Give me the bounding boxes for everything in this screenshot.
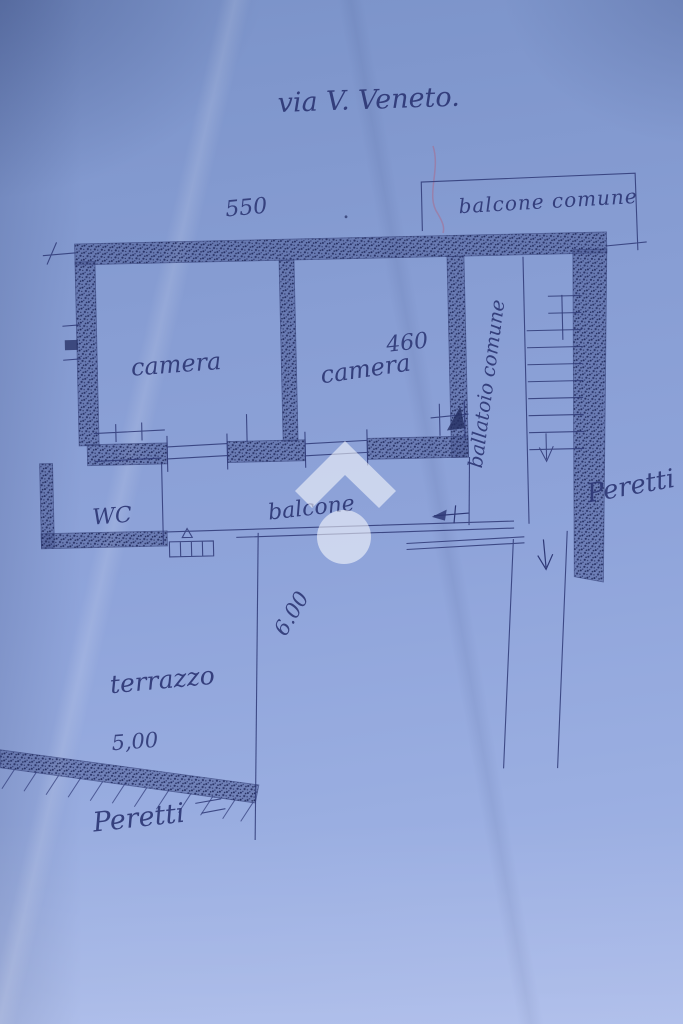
balcone-comune-label: balcone comune: [458, 184, 638, 218]
stair-down-arrow: [539, 433, 554, 461]
down-arrow: [537, 539, 553, 569]
ballatoio-comune-label: ballatoio comune: [464, 298, 510, 469]
wall-bottom-seg1: [87, 443, 167, 466]
wall-top: [75, 232, 607, 265]
wall-partition: [279, 260, 298, 441]
left-arrow-head: [432, 510, 447, 521]
plan-geometry: 550 balcone comune camera camera 460 bal…: [0, 172, 683, 845]
house-circle-shape: [317, 510, 371, 564]
floor-plan-drawing: via V. Veneto.: [0, 0, 683, 1024]
wall-stairwell-right: [567, 249, 615, 583]
wall-bottom-seg3: [367, 436, 468, 459]
annotation-arrows: [432, 503, 553, 572]
red-crease-mark: [433, 146, 444, 233]
street-label: via V. Veneto.: [277, 82, 460, 119]
dim-facade-width: 550: [224, 194, 268, 223]
wall-bottom-seg2: [227, 440, 305, 463]
signature-bottom: Peretti: [90, 798, 186, 839]
dim-terrazzo-depth: 6.00: [269, 587, 314, 639]
dim-terrazzo-width: 5,00: [111, 728, 159, 755]
camera-left-label: camera: [130, 347, 222, 382]
terrazzo-label: terrazzo: [109, 661, 216, 700]
wc-label: WC: [92, 503, 133, 531]
ink-dot: [345, 215, 348, 218]
dim-camera-right-width: 460: [384, 328, 429, 358]
floor-plan-photo: via V. Veneto.: [0, 0, 683, 1024]
window-mark-left-wall: [65, 340, 78, 350]
wall-wc-bottom: [41, 531, 167, 549]
wall-left: [75, 262, 99, 446]
